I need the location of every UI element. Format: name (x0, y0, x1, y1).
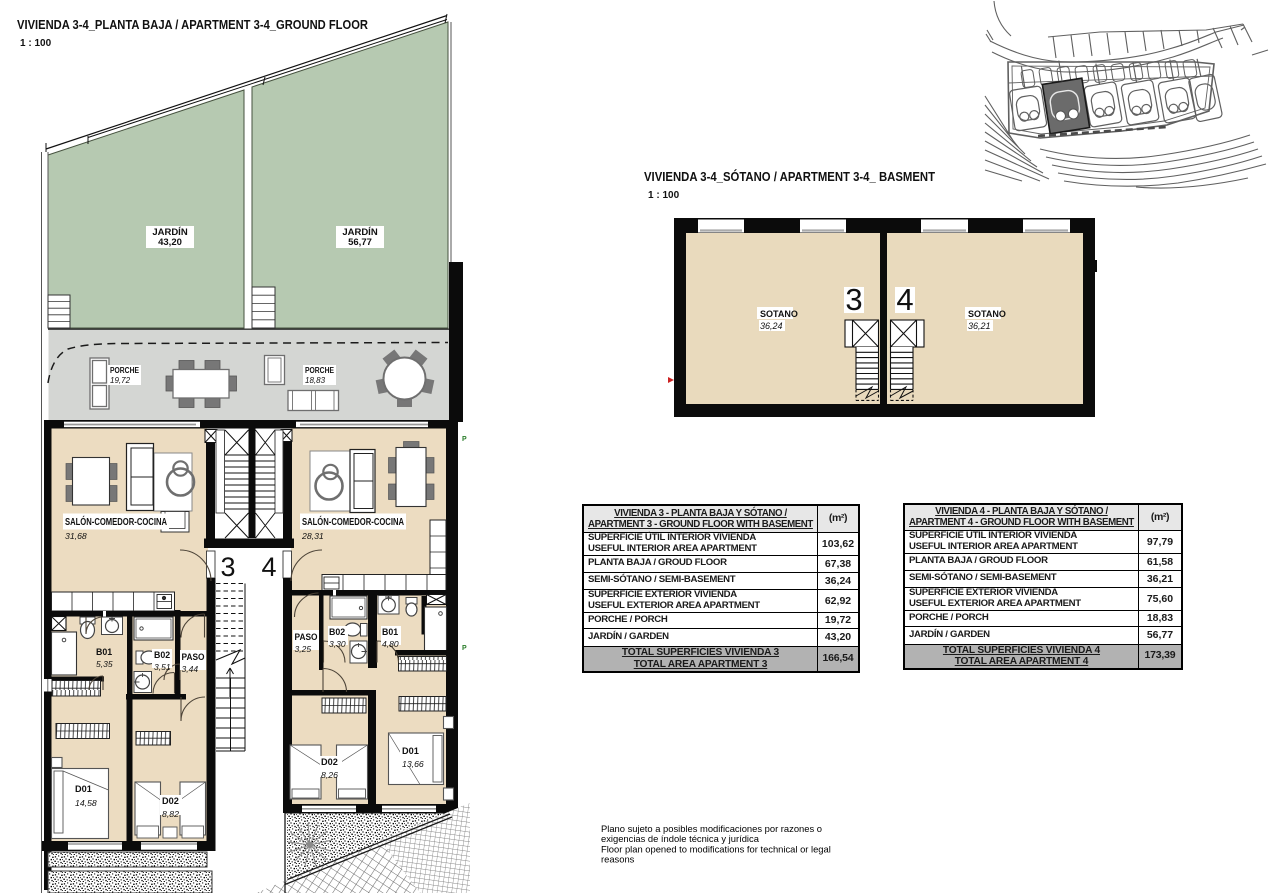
svg-text:D01: D01 (75, 784, 92, 794)
svg-text:8,26: 8,26 (321, 770, 338, 780)
svg-text:4: 4 (261, 552, 276, 582)
svg-text:5,35: 5,35 (96, 659, 113, 669)
svg-text:31,68: 31,68 (65, 531, 87, 541)
svg-text:3,30: 3,30 (329, 639, 346, 649)
svg-text:PORCHE: PORCHE (110, 366, 140, 375)
svg-text:SALÓN-COMEDOR-COCINA: SALÓN-COMEDOR-COCINA (302, 515, 404, 528)
svg-text:3: 3 (220, 552, 235, 582)
svg-text:3,44: 3,44 (182, 664, 199, 674)
svg-text:VIVIENDA 3-4_SÓTANO / APARTME: VIVIENDA 3-4_SÓTANO / APARTMENT 3-4_ BAS… (644, 169, 935, 184)
svg-text:VIVIENDA 3-4_PLANTA BAJA / APA: VIVIENDA 3-4_PLANTA BAJA / APARTMENT 3-4… (17, 17, 369, 32)
svg-text:4: 4 (896, 282, 913, 317)
svg-text:1 : 100: 1 : 100 (648, 190, 680, 201)
svg-text:1 : 100: 1 : 100 (20, 38, 52, 49)
svg-text:reasons: reasons (601, 854, 635, 865)
svg-text:PORCHE: PORCHE (305, 366, 335, 375)
svg-text:Floor plan opened to modificat: Floor plan opened to modifications for t… (601, 843, 831, 854)
svg-text:43,20: 43,20 (158, 237, 182, 248)
svg-text:36,21: 36,21 (968, 321, 991, 331)
svg-text:8,82: 8,82 (162, 809, 179, 819)
svg-text:B01: B01 (382, 627, 398, 637)
svg-text:B02: B02 (154, 650, 170, 660)
svg-text:B01: B01 (96, 647, 112, 657)
svg-text:D02: D02 (162, 796, 179, 806)
svg-text:P: P (462, 645, 467, 652)
svg-text:18,83: 18,83 (305, 376, 326, 385)
svg-text:56,77: 56,77 (348, 237, 372, 248)
svg-text:P: P (462, 436, 467, 443)
svg-text:B02: B02 (329, 627, 345, 637)
svg-text:14,58: 14,58 (75, 798, 97, 808)
svg-text:D02: D02 (321, 757, 338, 767)
svg-text:PASO: PASO (182, 652, 205, 662)
svg-text:3,51: 3,51 (154, 662, 171, 672)
svg-text:4,80: 4,80 (382, 639, 399, 649)
svg-text:28,31: 28,31 (301, 531, 324, 541)
svg-text:SOTANO: SOTANO (760, 309, 798, 319)
svg-text:SALÓN-COMEDOR-COCINA: SALÓN-COMEDOR-COCINA (65, 515, 167, 528)
svg-text:19,72: 19,72 (110, 376, 131, 385)
svg-text:SOTANO: SOTANO (968, 309, 1006, 319)
svg-text:3,25: 3,25 (295, 644, 312, 654)
svg-text:D01: D01 (402, 746, 419, 756)
svg-text:PASO: PASO (295, 632, 318, 642)
svg-text:3: 3 (845, 282, 862, 317)
svg-text:13,66: 13,66 (402, 759, 424, 769)
svg-text:36,24: 36,24 (760, 321, 783, 331)
